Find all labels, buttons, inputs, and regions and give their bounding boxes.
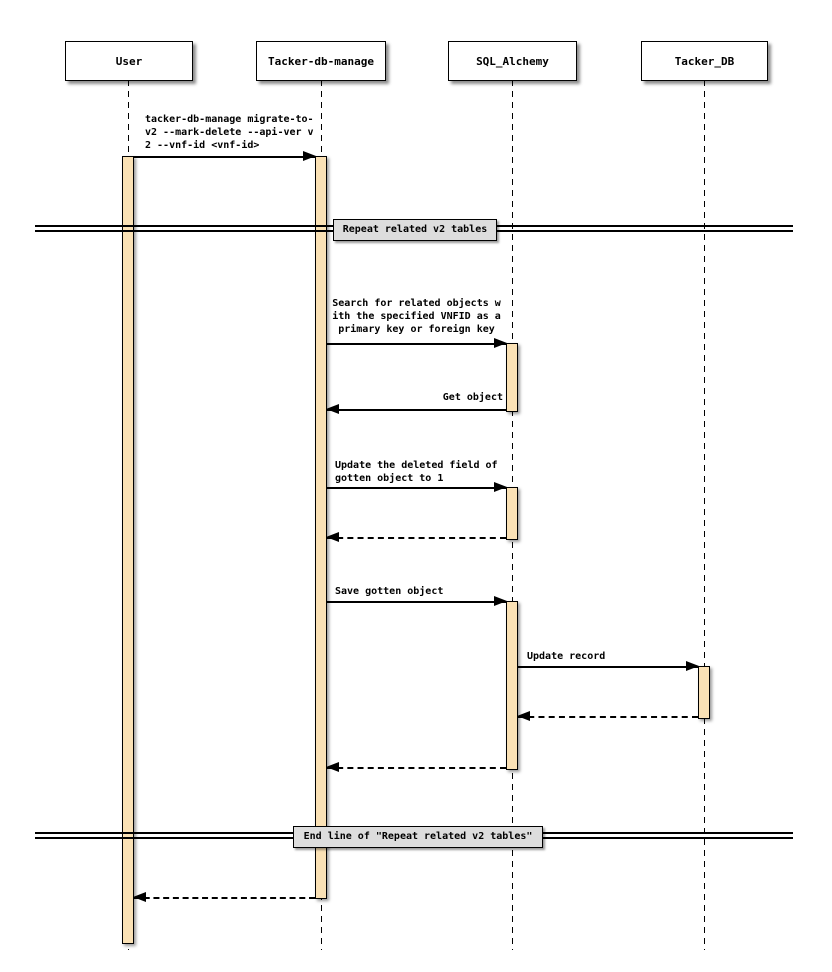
- participant-label: SQL_Alchemy: [476, 55, 549, 68]
- message-arrow: [134, 156, 315, 158]
- participant-user: User: [65, 41, 193, 81]
- participant-tacker-db: Tacker_DB: [641, 41, 768, 81]
- participant-tacker-db-manage: Tacker-db-manage: [256, 41, 386, 81]
- lifeline-tacker-db: [704, 80, 705, 950]
- return-arrow: [134, 897, 315, 899]
- message-label: tacker-db-manage migrate-to- v2 --mark-d…: [145, 113, 314, 152]
- message-arrow: [327, 487, 506, 489]
- return-arrow: [327, 767, 506, 769]
- activation-bar-sql-alchemy-2: [506, 487, 518, 540]
- message-label: Update record: [527, 650, 605, 663]
- participant-sql-alchemy: SQL_Alchemy: [448, 41, 577, 81]
- return-arrow: [327, 537, 506, 539]
- message-label: Search for related objects w ith the spe…: [327, 297, 506, 336]
- message-label: Get object: [327, 391, 503, 404]
- message-label: Update the deleted field of gotten objec…: [335, 459, 498, 485]
- activation-bar-sql-alchemy-1: [506, 343, 518, 412]
- activation-bar-tacker-db-manage: [315, 156, 327, 899]
- message-arrow: [518, 666, 698, 668]
- activation-bar-user: [122, 156, 134, 944]
- message-arrow: [327, 601, 506, 603]
- message-label: Save gotten object: [335, 585, 443, 598]
- divider-label: End line of "Repeat related v2 tables": [304, 831, 533, 842]
- message-arrow: [327, 409, 506, 411]
- divider-repeat-end: End line of "Repeat related v2 tables": [293, 826, 543, 848]
- activation-bar-tacker-db: [698, 666, 710, 719]
- divider-repeat-start: Repeat related v2 tables: [333, 219, 497, 241]
- participant-label: User: [116, 55, 143, 68]
- return-arrow: [518, 716, 698, 718]
- participant-label: Tacker-db-manage: [268, 55, 374, 68]
- participant-label: Tacker_DB: [675, 55, 735, 68]
- message-arrow: [327, 343, 506, 345]
- activation-bar-sql-alchemy-3: [506, 601, 518, 770]
- sequence-diagram: User Tacker-db-manage SQL_Alchemy Tacker…: [0, 0, 832, 972]
- divider-label: Repeat related v2 tables: [343, 224, 488, 235]
